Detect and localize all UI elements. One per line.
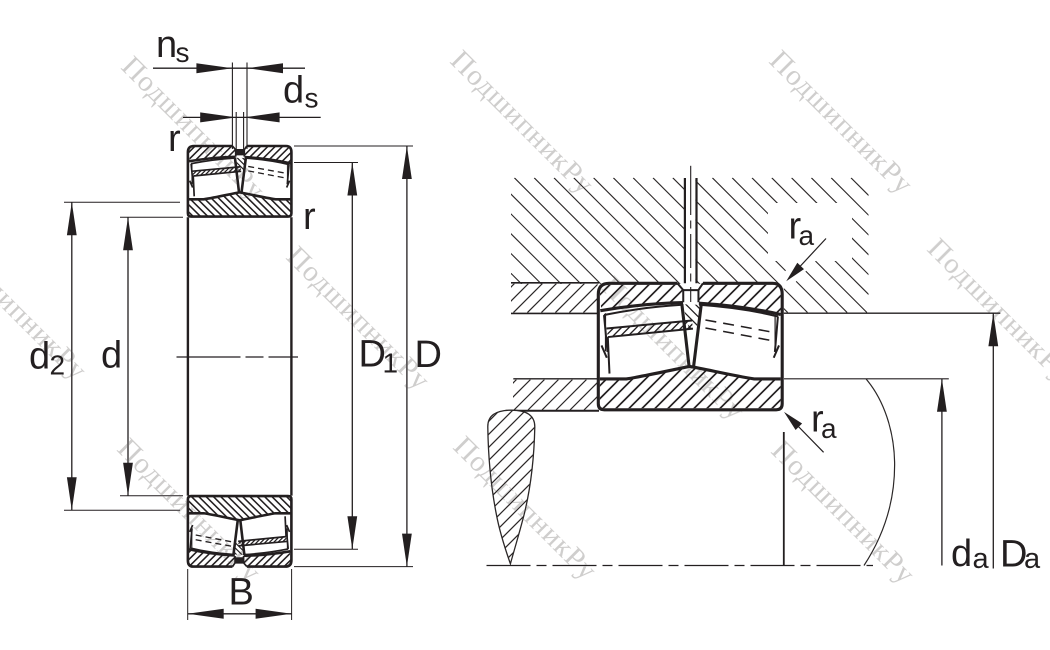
svg-text:d: d: [283, 70, 304, 112]
svg-text:d: d: [101, 335, 122, 377]
svg-text:a: a: [1024, 543, 1041, 575]
svg-text:a: a: [799, 220, 815, 251]
svg-text:s: s: [176, 37, 190, 68]
svg-text:a: a: [821, 413, 837, 444]
svg-text:r: r: [303, 196, 316, 238]
svg-text:d: d: [951, 533, 972, 575]
svg-text:n: n: [156, 24, 177, 66]
svg-text:s: s: [305, 83, 319, 114]
svg-text:a: a: [973, 543, 990, 575]
